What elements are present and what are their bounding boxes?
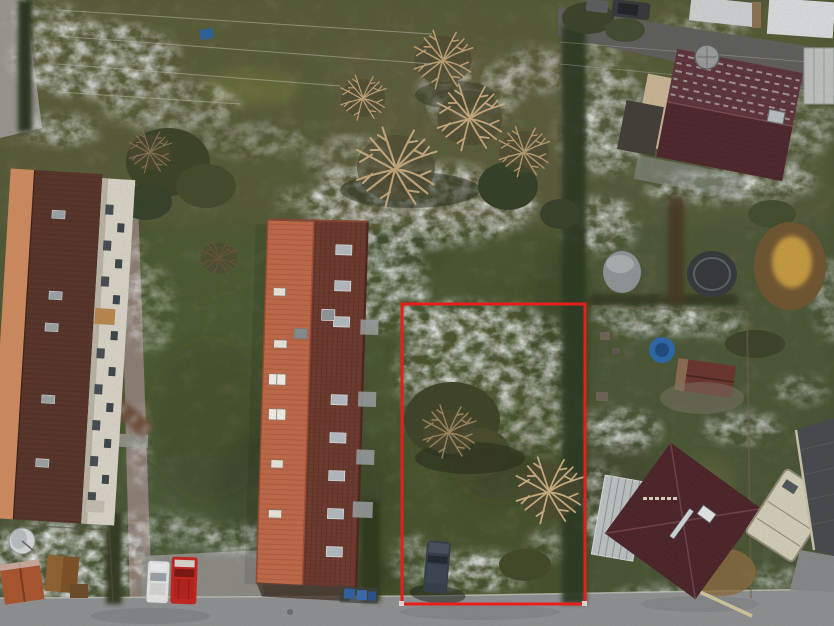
photo-grain (0, 0, 834, 626)
aerial-photo (0, 0, 834, 626)
aerial-photo-canvas (0, 0, 834, 626)
